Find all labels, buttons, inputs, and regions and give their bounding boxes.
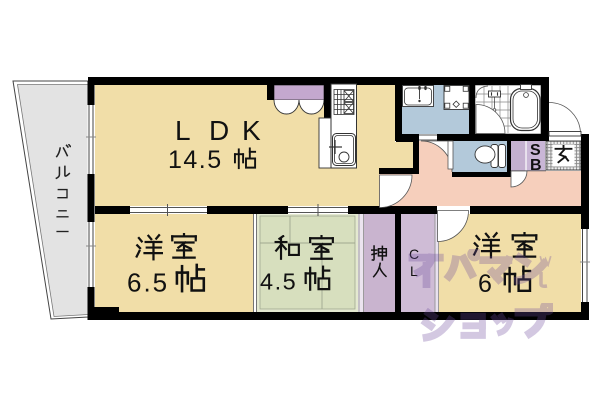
svg-text:6.5: 6.5 (127, 268, 169, 298)
svg-text:4.5: 4.5 (260, 269, 297, 295)
svg-text:B: B (530, 157, 542, 174)
svg-text:LDK: LDK (175, 115, 261, 146)
svg-text:14.5: 14.5 (168, 146, 223, 174)
